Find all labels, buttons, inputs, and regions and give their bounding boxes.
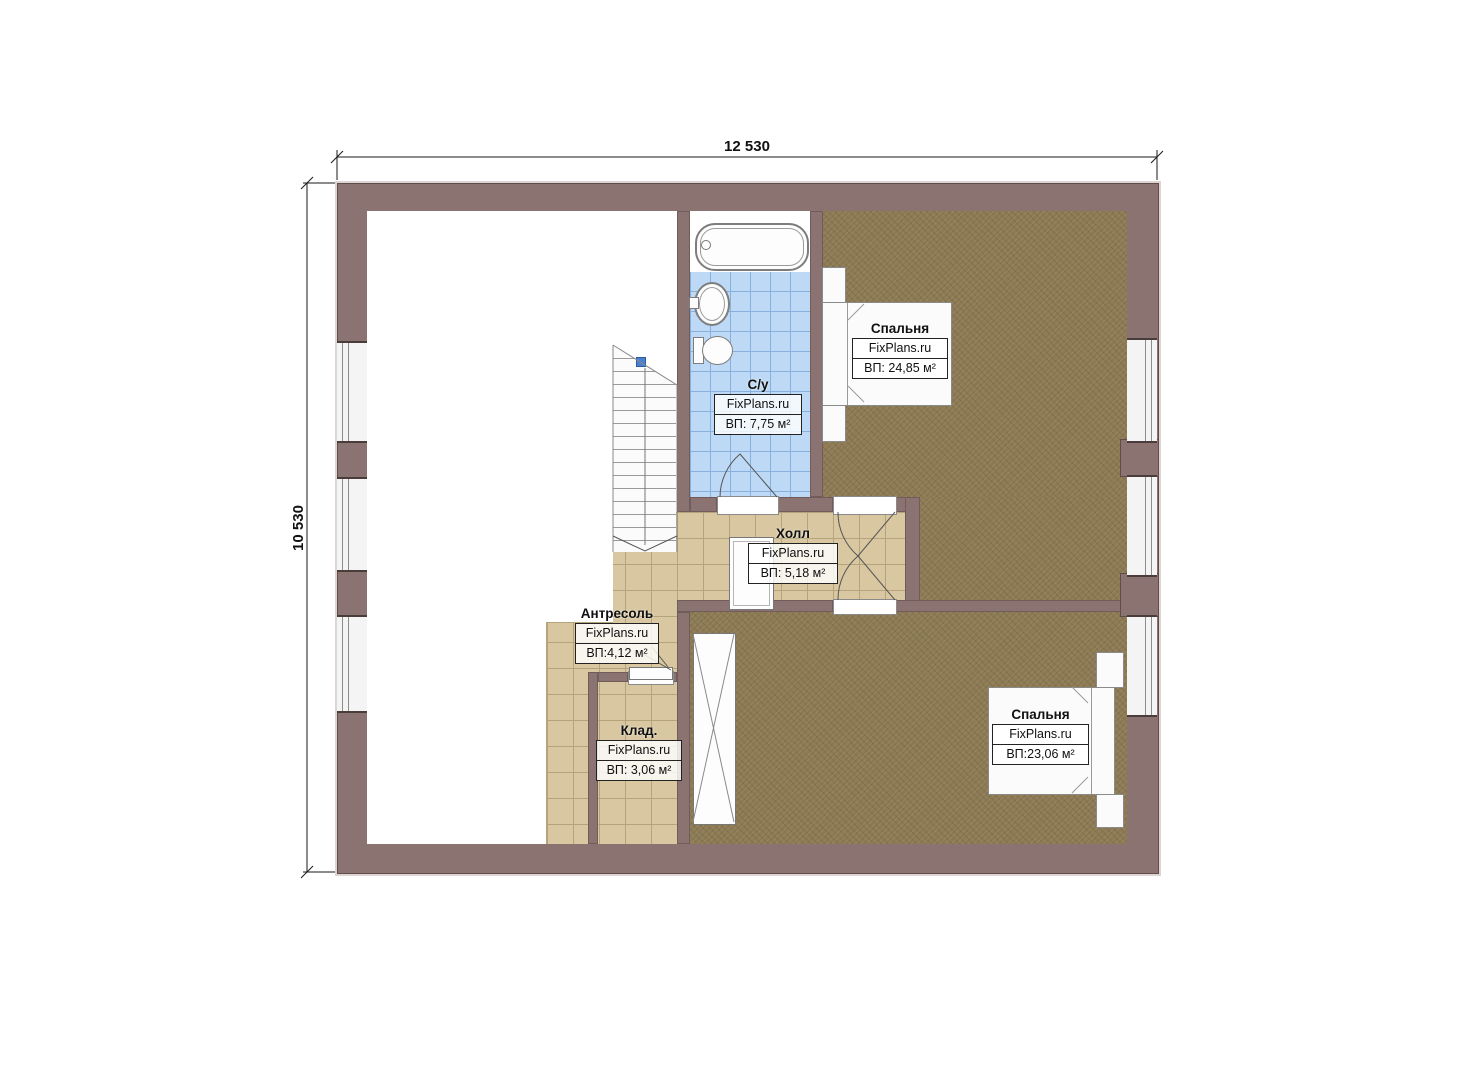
door-opening-bedroom-bottom: [833, 599, 897, 615]
room-area: ВП: 5,18 м²: [749, 563, 837, 583]
toilet-bowl-icon: [702, 336, 733, 365]
room-info-box: FixPlans.ru ВП:23,06 м²: [992, 724, 1089, 765]
bathtub-icon: [695, 223, 809, 271]
nightstand: [1096, 794, 1124, 828]
bedroom-top-floor-ext: [920, 497, 1127, 600]
dimension-top-label: 12 530: [724, 138, 770, 155]
room-label-bathroom: С/у FixPlans.ru ВП: 7,75 м²: [714, 377, 802, 435]
room-source: FixPlans.ru: [576, 624, 658, 643]
room-info-box: FixPlans.ru ВП:4,12 м²: [575, 623, 659, 664]
room-area: ВП: 3,06 м²: [597, 760, 681, 780]
room-area: ВП: 24,85 м²: [853, 358, 947, 378]
right-wall-pier-1: [1120, 439, 1159, 477]
window: [1127, 475, 1157, 577]
room-info-box: FixPlans.ru ВП: 7,75 м²: [714, 394, 802, 435]
floor-plan: 12 530 10 530 Спальня FixPlans.ru ВП: 24…: [0, 0, 1474, 1080]
window: [337, 341, 367, 443]
room-source: FixPlans.ru: [715, 395, 801, 414]
stairs-marker: [636, 357, 646, 367]
dimension-left-label: 10 530: [290, 505, 307, 551]
nightstand: [1096, 652, 1124, 688]
room-area: ВП:4,12 м²: [576, 643, 658, 663]
room-source: FixPlans.ru: [597, 741, 681, 760]
room-name: Антресоль: [575, 606, 659, 621]
room-label-bedroom-top: Спальня FixPlans.ru ВП: 24,85 м²: [852, 321, 948, 379]
door-opening-bathroom: [717, 496, 779, 515]
room-info-box: FixPlans.ru ВП: 24,85 м²: [852, 338, 948, 379]
wall-hall-north-b: [777, 497, 833, 512]
bathtub-faucet-icon: [701, 240, 711, 250]
wall-hall-east: [905, 497, 920, 612]
room-name: С/у: [714, 377, 802, 392]
window: [337, 615, 367, 713]
wardrobe: [693, 633, 736, 825]
room-source: FixPlans.ru: [749, 544, 837, 563]
wall-bathroom-west: [677, 211, 690, 512]
room-label-mezzanine: Антресоль FixPlans.ru ВП:4,12 м²: [575, 606, 659, 664]
sink-icon: [694, 282, 730, 326]
window: [337, 477, 367, 572]
room-name: Клад.: [596, 723, 682, 738]
room-area: ВП:23,06 м²: [993, 744, 1088, 764]
room-label-storage: Клад. FixPlans.ru ВП: 3,06 м²: [596, 723, 682, 781]
wall-bedrooms-divider-b: [895, 600, 1127, 612]
room-name: Холл: [748, 526, 838, 541]
room-area: ВП: 7,75 м²: [715, 414, 801, 434]
room-info-box: FixPlans.ru ВП: 5,18 м²: [748, 543, 838, 584]
room-source: FixPlans.ru: [853, 339, 947, 358]
window: [1127, 615, 1157, 717]
room-source: FixPlans.ru: [993, 725, 1088, 744]
room-info-box: FixPlans.ru ВП: 3,06 м²: [596, 740, 682, 781]
room-name: Спальня: [852, 321, 948, 336]
room-label-bedroom-bottom: Спальня FixPlans.ru ВП:23,06 м²: [992, 707, 1089, 765]
nightstand: [822, 405, 846, 442]
room-label-hall: Холл FixPlans.ru ВП: 5,18 м²: [748, 526, 838, 584]
right-wall-pier-2: [1120, 573, 1159, 617]
mezzanine-left-edge: [546, 622, 547, 844]
wall-hall-north-a: [690, 497, 717, 512]
wall-storage-north-a: [598, 672, 628, 682]
room-name: Спальня: [992, 707, 1089, 722]
window: [1127, 338, 1157, 443]
door-opening-bedroom-top: [833, 496, 897, 515]
sink-tap-icon: [689, 297, 699, 309]
storage-door-leaf: [629, 667, 673, 680]
nightstand: [822, 267, 846, 303]
dimension-left: 10 530: [290, 177, 335, 878]
dimension-top: 12 530: [331, 138, 1163, 180]
